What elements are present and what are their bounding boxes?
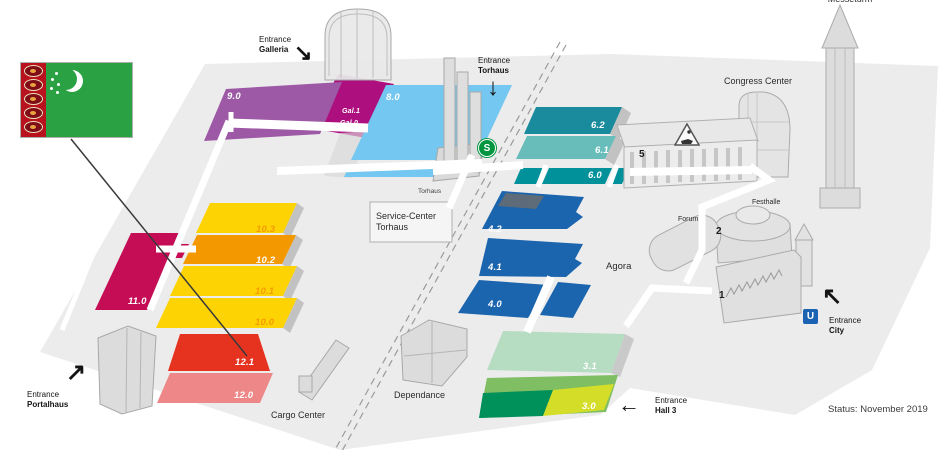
portalhaus-building: [98, 326, 156, 414]
service-center-label-line2: Torhaus: [376, 222, 436, 233]
sbahn-badge: S: [478, 139, 496, 157]
hall-12-0-shape[interactable]: [157, 373, 273, 403]
hall-3-0-label: 3.0: [582, 401, 596, 412]
torhaus-small-label: Torhaus: [418, 188, 441, 195]
hall-1-label: 1: [719, 290, 725, 301]
entrance-portalhaus-label: EntrancePortalhaus: [27, 390, 68, 409]
hall-12-0-label: 12.0: [234, 390, 253, 401]
entrance-torhaus-label: EntranceTorhaus: [478, 56, 510, 75]
ubahn-badge: U: [803, 309, 818, 324]
entrance-city-label: EntranceCity: [829, 316, 861, 335]
hall-6-2-shape[interactable]: [524, 107, 622, 134]
hall-4-0-label: 4.0: [488, 299, 502, 310]
hall-10-1-shape[interactable]: [170, 266, 297, 296]
entrance-hall3-label: EntranceHall 3: [655, 396, 687, 415]
messeturm-label: Messeturm: [806, 0, 894, 4]
hall-8-0-label: 8.0: [386, 92, 400, 103]
cargo-center-label: Cargo Center: [271, 410, 325, 420]
entrance-portalhaus-arrow-icon: ↗: [66, 358, 86, 387]
gal-1-label: Gal.1: [342, 108, 360, 115]
hall-2-label: 2: [716, 226, 722, 237]
agora-label: Agora: [606, 261, 631, 272]
hall-10-2-label: 10.2: [256, 255, 275, 266]
hall-6-0-label: 6.0: [588, 170, 602, 181]
crescent-icon: [61, 70, 83, 92]
hall-10-1-label: 10.1: [255, 286, 274, 297]
dependance-label: Dependance: [394, 390, 445, 400]
hall-4-1-label: 4.1: [488, 262, 502, 273]
entrance-city-arrow-icon: ↖: [822, 282, 842, 311]
map-canvas: [0, 0, 950, 450]
hall-3-0-dark: [479, 390, 553, 418]
hall-6-1-label: 6.1: [595, 145, 609, 156]
hall-3-1-shape[interactable]: [487, 331, 625, 373]
hall-12-1-shape[interactable]: [168, 334, 270, 371]
turkmenistan-flag: [21, 63, 132, 137]
messeturm-building: [820, 5, 860, 208]
forum-label: Forum: [678, 216, 698, 223]
hall-9-0-label: 9.0: [227, 91, 241, 102]
galleria-building: [325, 9, 391, 80]
entrance-torhaus-arrow-icon: ↓: [487, 74, 499, 102]
service-center-label-line1: Service-Center: [376, 211, 436, 222]
hall-10-3-shape[interactable]: [196, 203, 297, 233]
hall-5-label: 5: [639, 149, 645, 160]
gal-0-label: Gal.0: [340, 120, 358, 127]
entrance-hall3-arrow-icon: ←: [618, 392, 640, 418]
entrance-galleria-label: EntranceGalleria: [259, 35, 291, 54]
fairground-map: 9.0 Gal.1 Gal.0 8.0 6.2 6.1 6.0 4.2 4.1 …: [0, 0, 950, 450]
hall-4-2-label: 4.2: [488, 224, 502, 235]
hall-11-0-label: 11.0: [128, 296, 147, 307]
hall-10-2-shape[interactable]: [183, 235, 296, 264]
hall-3-1-label: 3.1: [583, 361, 597, 372]
hall-12-1-label: 12.1: [235, 357, 254, 368]
festhalle-label: Festhalle: [752, 199, 780, 206]
congress-center-label: Congress Center: [724, 76, 792, 86]
hall-10-3-label: 10.3: [256, 224, 275, 235]
hall-10-0-shape[interactable]: [156, 298, 297, 328]
hall-6-2-label: 6.2: [591, 120, 605, 131]
status-label: Status: November 2019: [828, 404, 928, 415]
entrance-galleria-arrow-icon: ↘: [294, 40, 312, 66]
hall-10-0-label: 10.0: [255, 317, 274, 328]
